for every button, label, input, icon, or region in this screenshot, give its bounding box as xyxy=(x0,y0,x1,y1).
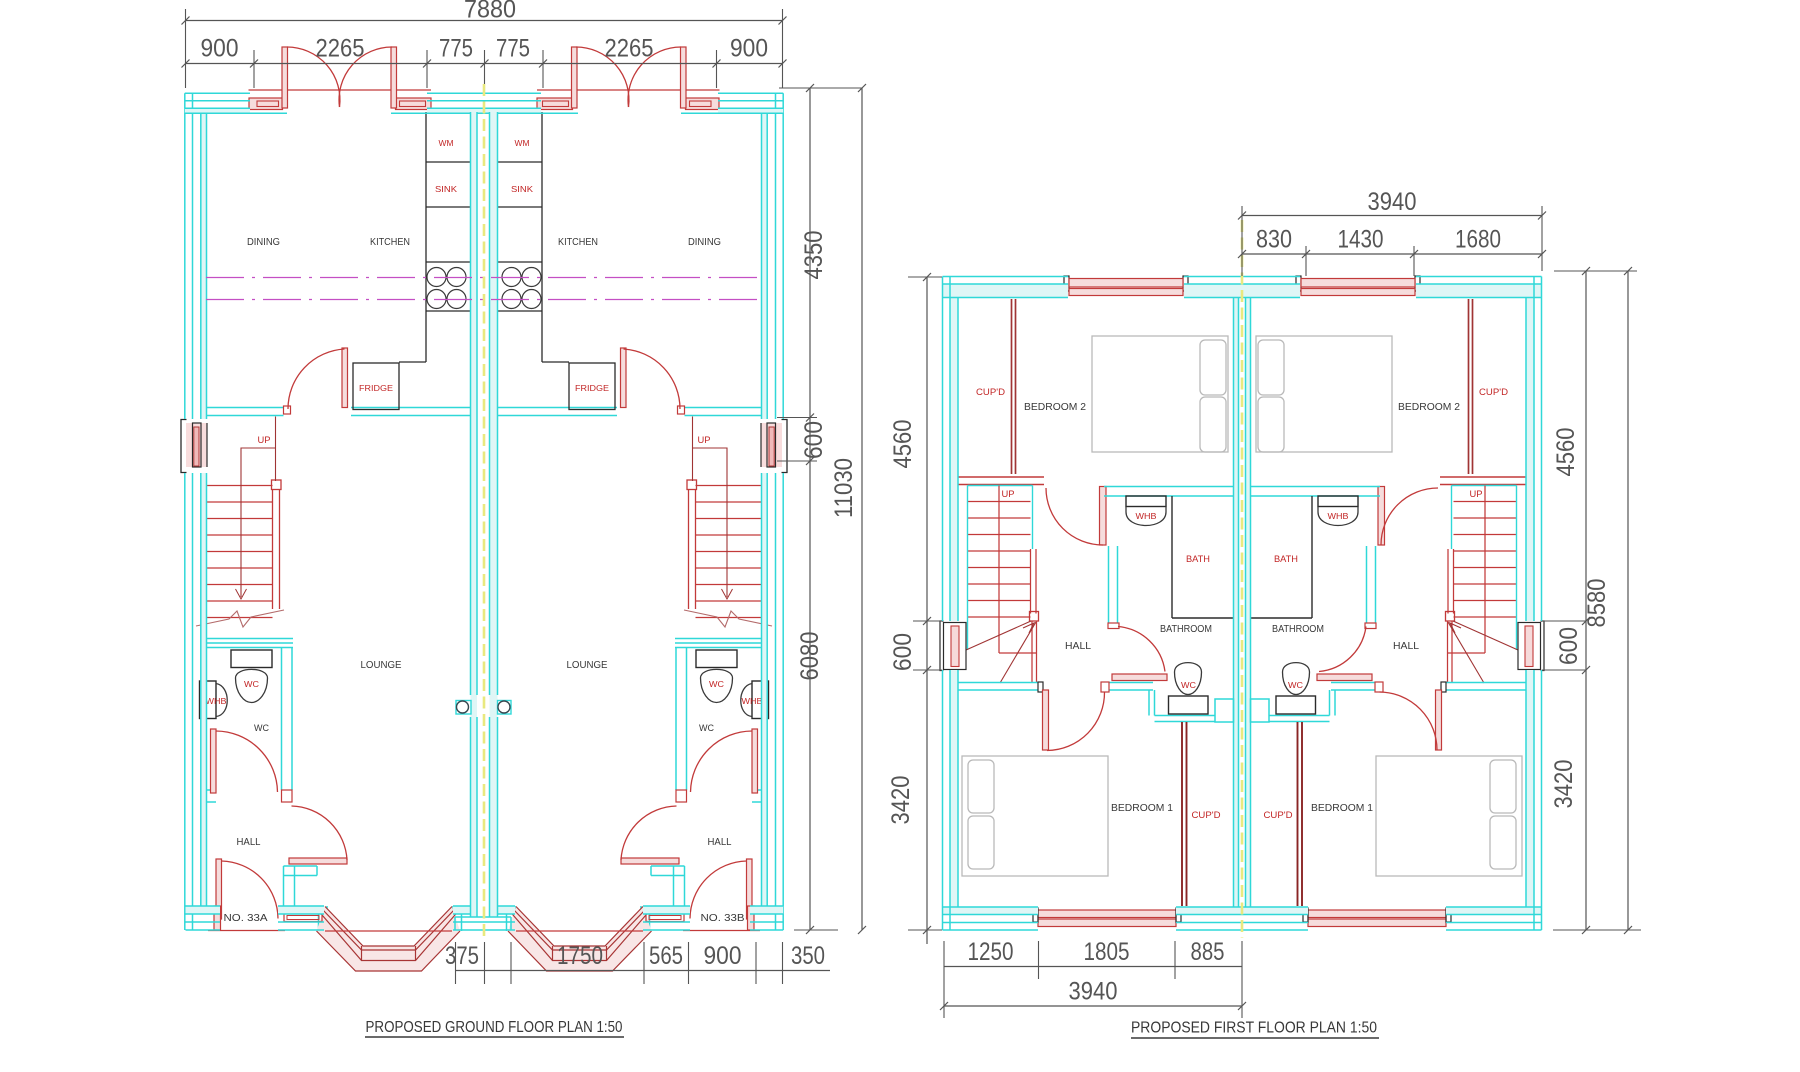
svg-text:CUP'D: CUP'D xyxy=(976,387,1006,397)
svg-text:PROPOSED FIRST FLOOR PLAN 1:50: PROPOSED FIRST FLOOR PLAN 1:50 xyxy=(1131,1020,1377,1037)
svg-text:WC: WC xyxy=(1288,680,1303,690)
svg-text:3940: 3940 xyxy=(1368,188,1417,216)
svg-text:1750: 1750 xyxy=(557,942,603,970)
svg-text:WC: WC xyxy=(699,723,714,734)
svg-text:WC: WC xyxy=(709,679,724,689)
svg-text:11030: 11030 xyxy=(830,458,858,518)
svg-text:BATHROOM: BATHROOM xyxy=(1272,624,1324,635)
svg-text:BEDROOM 2: BEDROOM 2 xyxy=(1398,402,1460,413)
svg-text:600: 600 xyxy=(800,421,828,459)
svg-text:WHB: WHB xyxy=(1136,512,1157,521)
svg-text:BEDROOM 1: BEDROOM 1 xyxy=(1311,803,1373,814)
svg-text:4560: 4560 xyxy=(889,420,917,469)
svg-text:UP: UP xyxy=(1002,489,1015,500)
svg-text:SINK: SINK xyxy=(511,184,533,194)
svg-text:7880: 7880 xyxy=(464,0,516,24)
svg-text:WC: WC xyxy=(254,723,269,734)
svg-text:WHB: WHB xyxy=(742,697,763,706)
svg-text:WC: WC xyxy=(1181,680,1196,690)
svg-text:900: 900 xyxy=(730,35,768,63)
svg-text:CUP'D: CUP'D xyxy=(1192,810,1222,820)
svg-text:900: 900 xyxy=(704,942,742,970)
svg-text:775: 775 xyxy=(496,35,530,63)
svg-text:PROPOSED GROUND FLOOR PLAN 1:5: PROPOSED GROUND FLOOR PLAN 1:50 xyxy=(366,1019,623,1036)
svg-text:600: 600 xyxy=(889,633,917,671)
svg-text:LOUNGE: LOUNGE xyxy=(567,660,608,671)
svg-text:SINK: SINK xyxy=(435,184,457,194)
svg-text:1250: 1250 xyxy=(968,938,1014,966)
svg-text:CUP'D: CUP'D xyxy=(1264,810,1294,820)
svg-text:BATHROOM: BATHROOM xyxy=(1160,624,1212,635)
svg-text:830: 830 xyxy=(1256,226,1292,254)
svg-text:6080: 6080 xyxy=(796,632,824,681)
svg-text:HALL: HALL xyxy=(237,837,261,848)
svg-text:900: 900 xyxy=(201,35,239,63)
svg-text:3420: 3420 xyxy=(1550,760,1578,809)
svg-text:4560: 4560 xyxy=(1552,428,1580,477)
svg-text:WHB: WHB xyxy=(206,697,227,706)
svg-text:CUP'D: CUP'D xyxy=(1479,387,1509,397)
svg-text:WHB: WHB xyxy=(1328,512,1349,521)
svg-text:775: 775 xyxy=(439,35,473,63)
svg-text:DINING: DINING xyxy=(688,237,721,248)
svg-text:2265: 2265 xyxy=(605,35,654,63)
svg-text:375: 375 xyxy=(445,942,479,970)
svg-text:UP: UP xyxy=(1470,489,1483,500)
svg-text:BEDROOM 1: BEDROOM 1 xyxy=(1111,803,1173,814)
svg-text:885: 885 xyxy=(1191,938,1225,966)
svg-text:NO. 33A: NO. 33A xyxy=(224,913,268,924)
svg-text:1805: 1805 xyxy=(1084,938,1130,966)
svg-text:KITCHEN: KITCHEN xyxy=(370,237,410,248)
svg-text:3420: 3420 xyxy=(887,776,915,825)
svg-text:2265: 2265 xyxy=(316,35,365,63)
svg-text:1430: 1430 xyxy=(1338,226,1384,254)
svg-text:WM: WM xyxy=(515,138,530,148)
svg-text:4350: 4350 xyxy=(800,231,828,280)
svg-text:NO. 33B: NO. 33B xyxy=(701,913,745,924)
svg-text:HALL: HALL xyxy=(1065,641,1091,652)
svg-text:8580: 8580 xyxy=(1583,579,1611,628)
svg-text:HALL: HALL xyxy=(1393,641,1419,652)
svg-text:WM: WM xyxy=(439,138,454,148)
svg-text:600: 600 xyxy=(1555,627,1583,665)
svg-text:LOUNGE: LOUNGE xyxy=(361,660,402,671)
svg-text:3940: 3940 xyxy=(1069,978,1118,1006)
svg-text:UP: UP xyxy=(258,435,271,446)
svg-text:FRIDGE: FRIDGE xyxy=(575,383,609,393)
svg-text:HALL: HALL xyxy=(708,837,732,848)
svg-text:UP: UP xyxy=(698,435,711,446)
svg-text:565: 565 xyxy=(649,942,683,970)
svg-text:FRIDGE: FRIDGE xyxy=(359,383,393,393)
svg-text:DINING: DINING xyxy=(247,237,280,248)
svg-text:WC: WC xyxy=(244,679,259,689)
svg-text:BEDROOM 2: BEDROOM 2 xyxy=(1024,402,1086,413)
svg-text:1680: 1680 xyxy=(1455,226,1501,254)
svg-text:BATH: BATH xyxy=(1274,554,1298,565)
svg-text:350: 350 xyxy=(791,942,825,970)
svg-text:KITCHEN: KITCHEN xyxy=(558,237,598,248)
svg-text:BATH: BATH xyxy=(1186,554,1210,565)
